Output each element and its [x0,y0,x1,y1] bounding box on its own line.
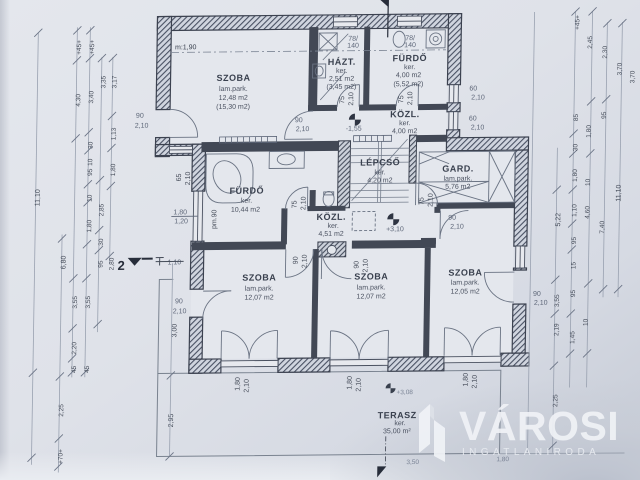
svg-text:ker.: ker. [399,120,410,127]
svg-text:3,55: 3,55 [554,294,561,307]
svg-text:30: 30 [572,143,579,151]
svg-text:KÖZL.: KÖZL. [316,212,346,222]
svg-text:+45+: +45+ [574,15,581,30]
svg-text:2,10: 2,10 [302,254,309,268]
svg-text:INGATLANIRODA: INGATLANIRODA [462,447,600,458]
svg-text:4,30: 4,30 [75,94,82,107]
svg-text:90: 90 [448,215,456,222]
svg-text:75: 75 [398,95,405,103]
svg-text:1,80: 1,80 [86,219,93,232]
svg-text:1,10: 1,10 [571,204,578,217]
svg-text:12,48 m2: 12,48 m2 [219,95,248,102]
svg-text:2,25: 2,25 [58,404,65,417]
svg-text:2,10: 2,10 [427,193,434,207]
svg-text:10: 10 [585,178,592,186]
svg-text:95: 95 [570,289,577,297]
svg-text:2,10: 2,10 [471,94,485,101]
svg-text:2: 2 [117,258,124,273]
svg-text:10: 10 [87,158,94,166]
svg-text:2,51 m2: 2,51 m2 [329,76,355,83]
svg-text:ker.: ker. [394,420,405,427]
svg-text:1,80: 1,80 [173,209,187,216]
svg-text:140: 140 [347,43,359,50]
svg-text:1,80: 1,80 [572,169,579,182]
svg-text:HÁZT.: HÁZT. [328,57,356,67]
svg-text:ker.: ker. [374,169,385,176]
svg-text:6,80: 6,80 [61,256,68,270]
svg-text:ker.: ker. [241,198,252,205]
svg-text:+45+: +45+ [76,40,83,55]
svg-text:3,35: 3,35 [100,75,107,88]
svg-text:+45+: +45+ [89,40,96,55]
svg-text:7,40: 7,40 [599,221,606,234]
svg-text:30: 30 [87,141,94,149]
svg-text:1,10: 1,10 [168,259,182,266]
svg-text:2,10: 2,10 [185,172,192,186]
svg-text:95: 95 [601,111,608,119]
svg-text:2,10: 2,10 [173,308,187,315]
svg-text:lam.park.: lam.park. [245,285,274,292]
svg-text:+70+: +70+ [57,449,64,464]
svg-text:+3,08: +3,08 [396,389,413,396]
svg-text:5,76 m2: 5,76 m2 [445,184,471,191]
svg-text:12,05 m2: 12,05 m2 [450,288,479,295]
svg-text:2,10: 2,10 [356,378,363,392]
svg-text:45: 45 [71,365,78,373]
svg-text:LÉPCSŐ: LÉPCSŐ [360,156,400,167]
svg-text:95: 95 [571,236,578,244]
svg-text:3,70: 3,70 [617,62,624,75]
svg-text:1,80: 1,80 [235,377,242,391]
svg-text:90: 90 [175,298,183,305]
svg-text:lam.park.: lam.park. [219,86,248,93]
svg-text:4,20 m2: 4,20 m2 [367,177,393,184]
svg-text:(5,52 m2): (5,52 m2) [393,81,423,88]
svg-text:15: 15 [570,261,577,269]
svg-text:2,10: 2,10 [471,124,485,131]
svg-text:VÁROSI: VÁROSI [459,403,619,449]
svg-text:SZOBA: SZOBA [354,271,388,281]
svg-text:11,10: 11,10 [616,184,623,201]
svg-text:ker.: ker. [404,64,415,71]
svg-text:-1,55: -1,55 [346,126,362,133]
svg-text:45: 45 [84,365,91,373]
svg-text:4,00 m2: 4,00 m2 [392,128,418,135]
svg-text:140: 140 [404,42,416,49]
svg-text:2,10: 2,10 [362,259,369,273]
svg-text:2,10: 2,10 [244,379,251,393]
svg-text:5,22: 5,22 [555,213,562,227]
svg-text:3,55: 3,55 [72,296,79,309]
svg-text:ker.: ker. [336,68,347,75]
svg-text:2,10: 2,10 [348,92,355,106]
svg-text:95: 95 [98,260,105,268]
svg-text:90: 90 [293,256,300,264]
svg-text:1,13: 1,13 [111,127,118,140]
svg-text:2,10: 2,10 [472,375,479,389]
svg-text:2,10: 2,10 [296,126,310,133]
svg-text:(3,45 m2): (3,45 m2) [326,84,356,91]
svg-text:10: 10 [583,318,590,326]
svg-text:4,51 m2: 4,51 m2 [318,231,344,238]
svg-text:3,50: 3,50 [406,459,419,466]
svg-text:lam.park.: lam.park. [357,284,386,291]
svg-text:2,10: 2,10 [534,300,548,307]
svg-text:2,45: 2,45 [587,36,594,49]
svg-text:90: 90 [136,113,144,120]
svg-text:3,00: 3,00 [171,324,178,338]
svg-text:lam.park.: lam.park. [443,176,472,183]
svg-text:4,60: 4,60 [584,206,591,219]
svg-text:ker.: ker. [327,223,338,230]
svg-text:10,44 m2: 10,44 m2 [231,207,260,214]
svg-text:3,70: 3,70 [629,70,636,83]
svg-text:1,80: 1,80 [463,373,470,387]
svg-text:4,00 m2: 4,00 m2 [396,72,422,79]
svg-text:75: 75 [419,197,426,205]
svg-text:1,80: 1,80 [586,125,593,138]
svg-text:1,45: 1,45 [569,331,576,344]
svg-text:1,20: 1,20 [174,218,188,225]
svg-text:m:1,90: m:1,90 [175,44,197,51]
svg-text:3,40: 3,40 [88,90,95,103]
svg-text:11,10: 11,10 [35,189,42,206]
svg-text:60: 60 [469,85,477,92]
svg-text:1,80: 1,80 [110,163,117,176]
svg-text:KÖZL.: KÖZL. [390,109,420,119]
svg-text:SZOBA: SZOBA [216,73,250,83]
svg-text:2,20: 2,20 [71,342,78,355]
svg-text:2,95: 2,95 [168,414,175,428]
svg-text:2,30: 2,30 [602,46,609,59]
svg-text:10: 10 [87,194,94,202]
svg-text:90: 90 [295,117,303,124]
svg-text:2,85: 2,85 [98,203,105,216]
svg-text:(15,30 m2): (15,30 m2) [216,104,250,111]
svg-text:85: 85 [573,113,580,121]
svg-text:90: 90 [533,291,541,298]
svg-text:30: 30 [98,238,105,246]
svg-text:2,10: 2,10 [300,196,307,210]
svg-text:65: 65 [176,173,183,181]
svg-text:2,80: 2,80 [109,257,116,270]
svg-text:12,07 m2: 12,07 m2 [244,294,273,301]
svg-text:2,10: 2,10 [135,123,149,130]
svg-text:1,80: 1,80 [347,376,354,390]
svg-text:60: 60 [469,115,477,122]
svg-text:2,10: 2,10 [407,91,414,105]
svg-text:2,19: 2,19 [553,323,560,336]
svg-text:35,00 m²: 35,00 m² [383,428,411,435]
svg-text:GARD.: GARD. [442,164,474,174]
svg-text:2,10: 2,10 [450,224,464,231]
svg-text:FÜRDŐ: FÜRDŐ [393,52,428,63]
svg-text:lam.park.: lam.park. [451,279,480,286]
svg-text:SZOBA: SZOBA [448,267,482,277]
svg-text:SZOBA: SZOBA [242,272,276,282]
svg-text:pm.90: pm.90 [211,209,218,229]
svg-text:90: 90 [353,261,360,269]
svg-text:3,55: 3,55 [85,295,92,308]
svg-text:75: 75 [339,96,346,104]
svg-text:75: 75 [291,200,298,208]
svg-text:FÜRDŐ: FÜRDŐ [229,185,264,196]
svg-text:TERASZ: TERASZ [378,410,417,420]
svg-text:95: 95 [87,168,94,176]
svg-text:3,17: 3,17 [111,75,118,88]
svg-text:+3,10: +3,10 [386,226,404,233]
svg-text:12,07 m2: 12,07 m2 [356,293,385,300]
